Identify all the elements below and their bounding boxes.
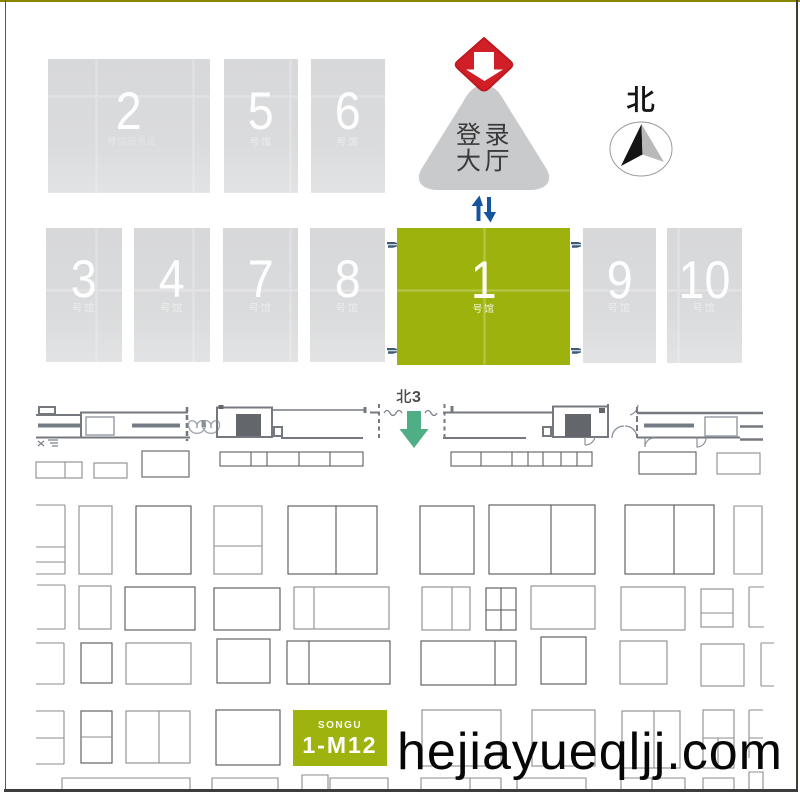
svg-text:3: 3 [412, 389, 421, 406]
